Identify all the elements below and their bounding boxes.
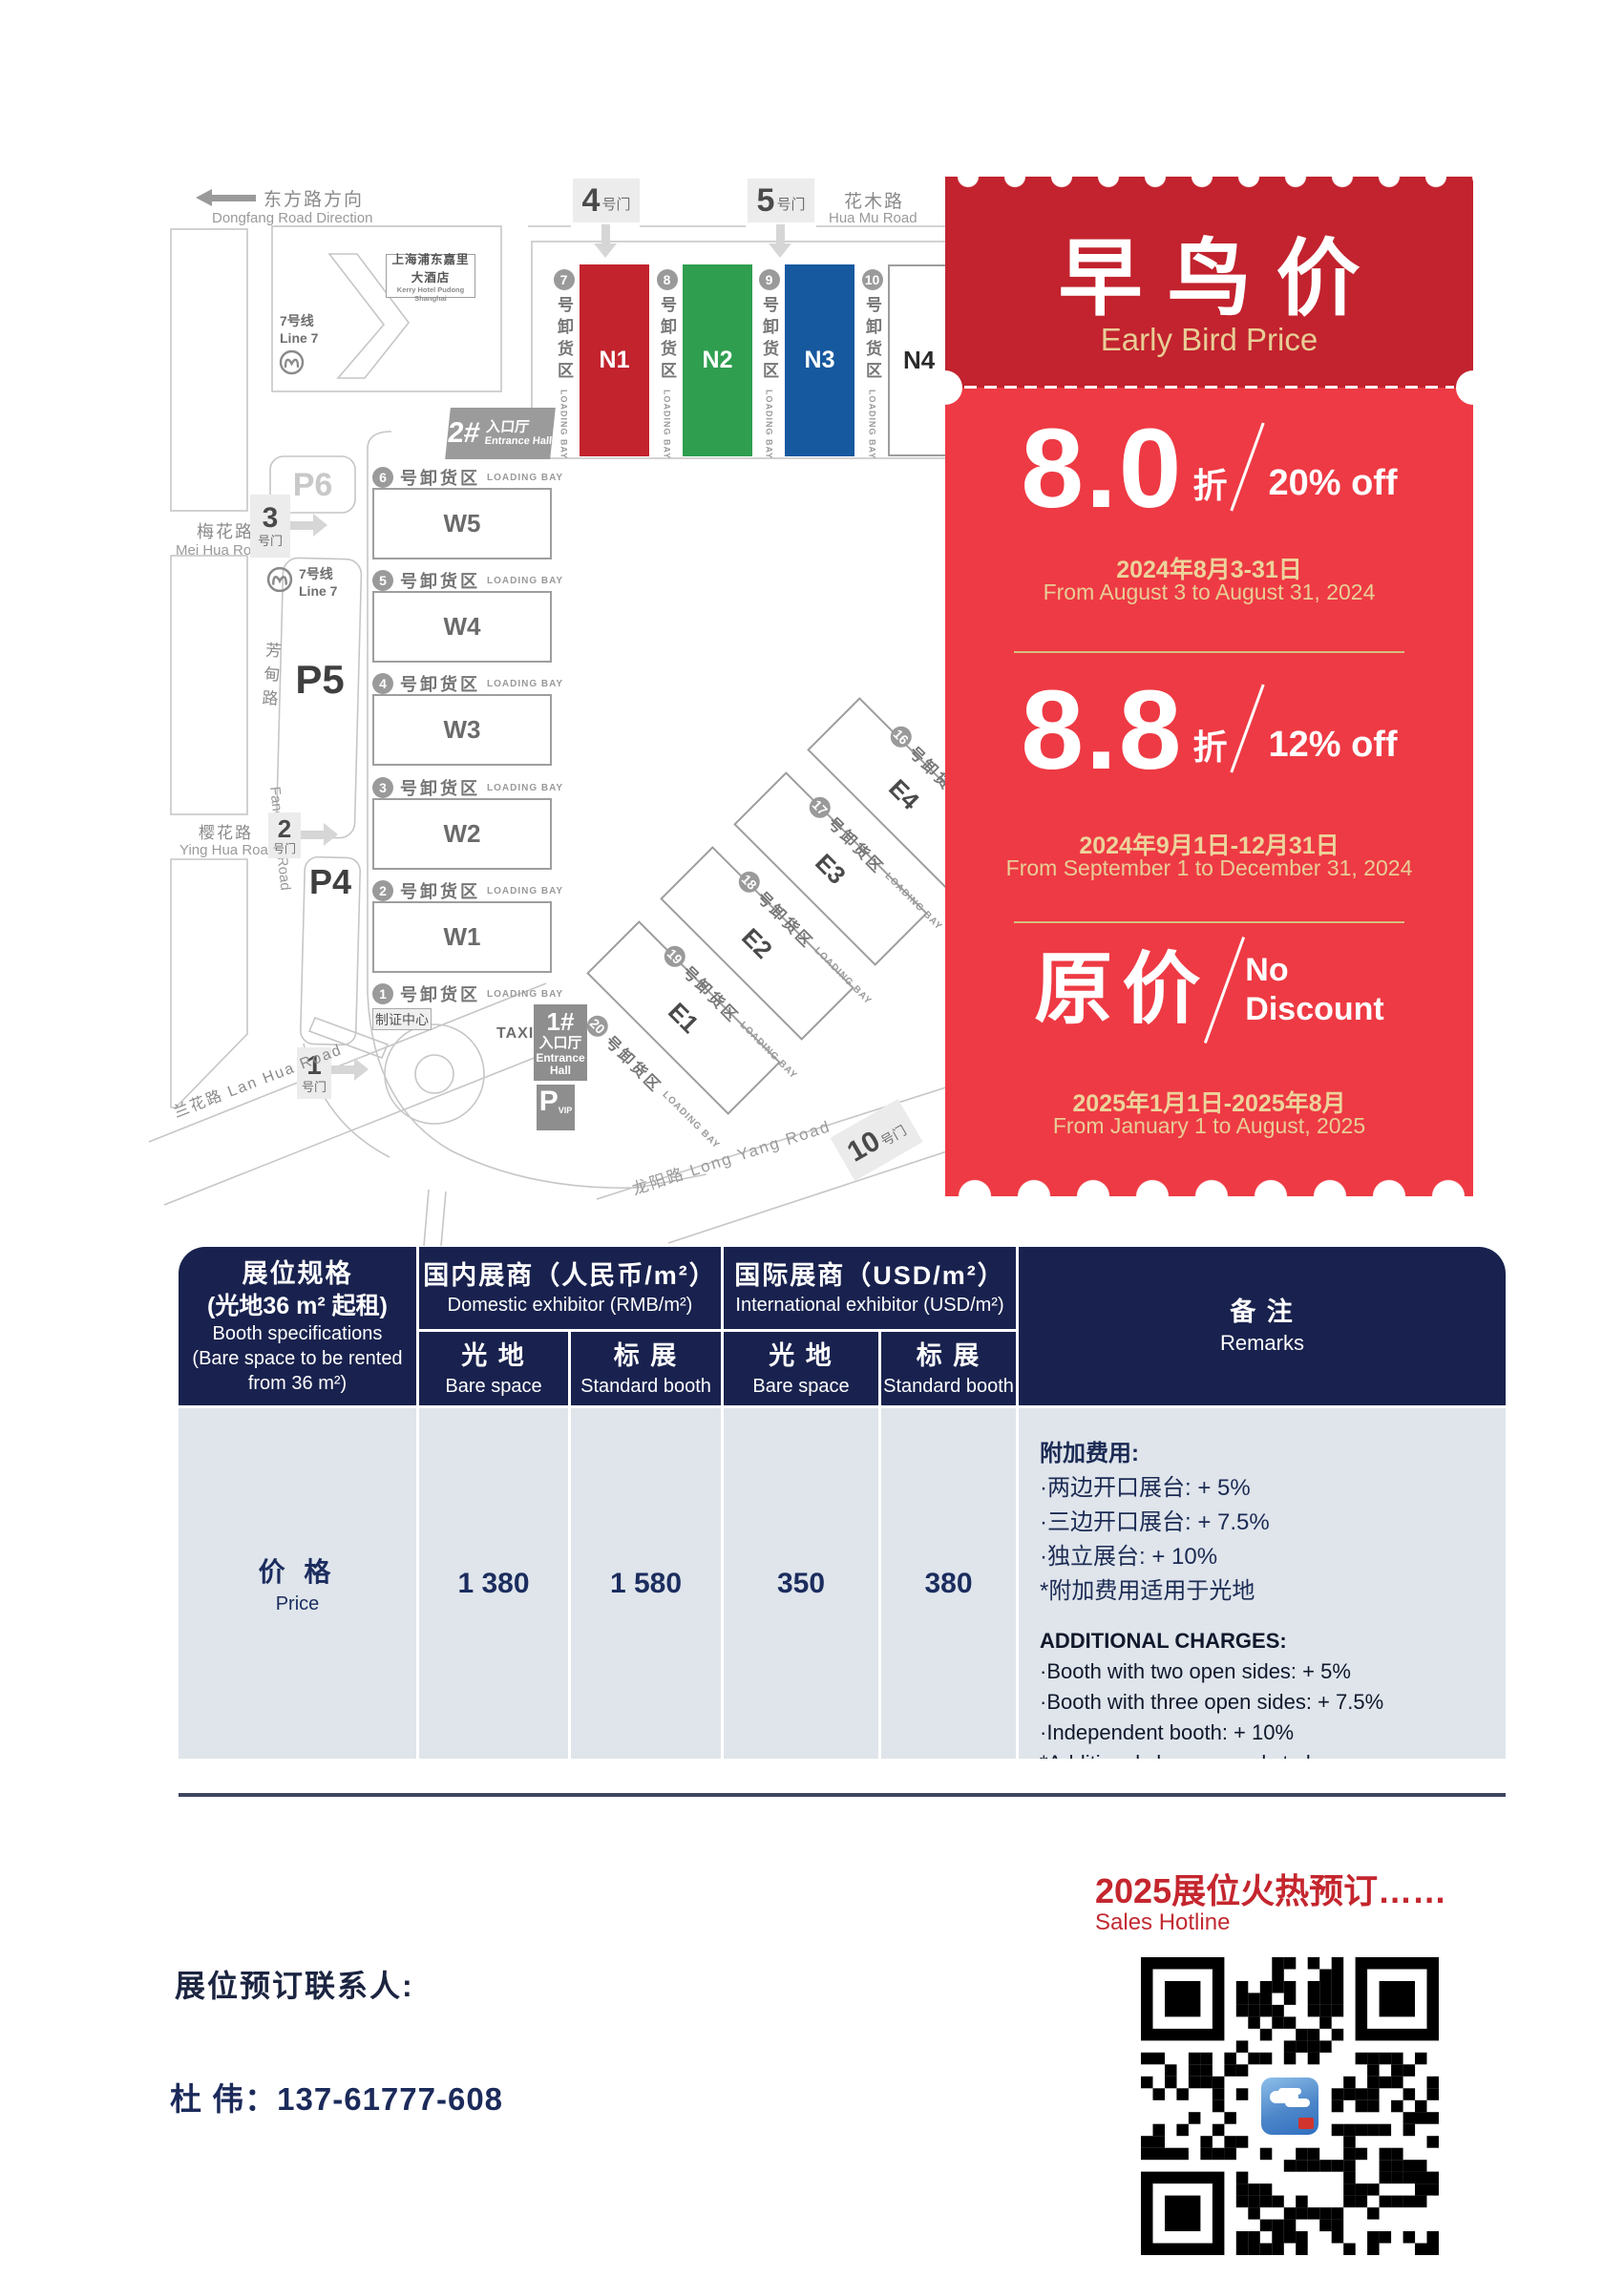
remarks-body: 附加费用: ·两边开口展台: + 5% ·三边开口展台: + 7.5% ·独立展… bbox=[1019, 1408, 1506, 1759]
slash-divider bbox=[1231, 684, 1265, 772]
line7-label-hotel: 7号线 Line 7 bbox=[280, 313, 318, 347]
loading-bay-3: 3号卸货区LOADING BAY bbox=[372, 775, 563, 800]
vip-parking-banner: P VIP bbox=[537, 1085, 575, 1130]
flyer-page: 东方路方向 Dongfang Road Direction 上海浦东嘉里大酒店 … bbox=[0, 0, 1624, 2278]
col-booth-specifications: 展位规格 (光地36 m² 起租) Booth specifications (… bbox=[179, 1247, 416, 1405]
hall-w3: W3 bbox=[372, 694, 552, 766]
loading-bay-2: 2号卸货区LOADING BAY bbox=[372, 878, 563, 903]
huamu-road-label-zh: 花木路 bbox=[844, 187, 904, 213]
price-table: 展位规格 (光地36 m² 起租) Booth specifications (… bbox=[179, 1247, 1506, 1759]
booking-contact-label: 展位预订联系人: bbox=[175, 1962, 414, 2006]
slash-divider bbox=[1204, 937, 1245, 1044]
kerry-hotel-label: 上海浦东嘉里大酒店 Kerry Hotel Pudong Shanghai bbox=[386, 254, 475, 298]
loading-bay-7: 7 号卸货区 LOADING BAY bbox=[552, 269, 576, 459]
col-intl-standard: 标 展 Standard booth bbox=[881, 1332, 1016, 1405]
tier-divider bbox=[1014, 651, 1404, 653]
tier1-period-en: From August 3 to August 31, 2024 bbox=[945, 580, 1473, 605]
coupon-notch-right bbox=[1456, 370, 1490, 405]
gate-3: 3 号门 bbox=[250, 495, 290, 558]
flag-icon bbox=[1298, 2118, 1314, 2129]
huamu-road-label-en: Hua Mu Road bbox=[829, 210, 917, 226]
parking-p5: P5 bbox=[291, 657, 348, 703]
coupon-title-en: Early Bird Price bbox=[945, 322, 1473, 358]
hall-n1: N1 bbox=[580, 264, 649, 456]
tier-divider bbox=[1014, 921, 1404, 923]
price-domestic-standard: 1 580 bbox=[571, 1408, 721, 1759]
gate-1-arrow-icon bbox=[331, 1058, 369, 1081]
loading-bay-9: 9 号卸货区 LOADING BAY bbox=[757, 269, 781, 459]
meihua-road-label-zh: 梅花路 bbox=[197, 518, 254, 543]
col-intl-bare: 光 地 Bare space bbox=[724, 1332, 878, 1405]
sales-hotline-title: 2025展位火热预订…… bbox=[1095, 1864, 1462, 1913]
price-domestic-bare: 1 380 bbox=[419, 1408, 568, 1759]
loading-bay-10: 10 号卸货区 LOADING BAY bbox=[860, 269, 884, 459]
loading-bay-1: 1号卸货区LOADING BAY bbox=[372, 981, 563, 1006]
loading-bay-6: 6号卸货区LOADING BAY bbox=[372, 465, 563, 490]
hall-w1: W1 bbox=[372, 901, 552, 973]
hall-n3: N3 bbox=[785, 264, 854, 456]
loading-bay-4: 4号卸货区LOADING BAY bbox=[372, 671, 563, 696]
coupon-title-zh: 早鸟价 bbox=[945, 211, 1473, 332]
line7-label-p5: 7号线 Line 7 bbox=[299, 566, 337, 600]
col-group-domestic: 国内展商（人民币/m²） Domestic exhibitor (RMB/m²) bbox=[419, 1247, 721, 1329]
gate-4-arrow-icon bbox=[594, 224, 617, 258]
coupon-notch-left bbox=[928, 370, 962, 405]
gate-5-arrow-icon bbox=[769, 224, 791, 258]
gate-5: 5号门 bbox=[748, 179, 814, 222]
entrance-hall-2-banner: 2# 入口厅 Entrance Hall bbox=[445, 408, 556, 459]
gate-3-arrow-icon bbox=[290, 514, 327, 537]
tier2-discount: 8.8 折 12% off bbox=[945, 682, 1473, 775]
footer-divider bbox=[179, 1793, 1506, 1797]
metro-logo-icon bbox=[266, 566, 293, 593]
col-domestic-bare: 光 地 Bare space bbox=[419, 1332, 568, 1405]
coupon-dashed-line bbox=[964, 386, 1454, 389]
slash-divider bbox=[1231, 422, 1265, 511]
qr-center-logo bbox=[1257, 2074, 1322, 2139]
fangdian-road-label-zh: 芳甸路 bbox=[255, 641, 284, 714]
hall-w2: W2 bbox=[372, 798, 552, 870]
badge-center-label: 制证中心 bbox=[372, 1008, 432, 1030]
metro-logo-icon bbox=[279, 349, 305, 375]
contact-phone: 杜 伟：137-61777-608 bbox=[170, 2074, 503, 2120]
hall-n2: N2 bbox=[683, 264, 752, 456]
gate-2-arrow-icon bbox=[301, 823, 338, 846]
gate-2: 2 号门 bbox=[268, 812, 301, 858]
sales-hotline-subtitle: Sales Hotline bbox=[1095, 1909, 1230, 1936]
dongfang-direction-arrow-icon bbox=[196, 189, 256, 206]
gate-4: 4号门 bbox=[573, 179, 640, 222]
coupon-header: 早鸟价 Early Bird Price bbox=[945, 177, 1473, 388]
dongfang-road-label-en: Dongfang Road Direction bbox=[212, 210, 372, 226]
hall-w4: W4 bbox=[372, 591, 552, 663]
tier2-period-en: From September 1 to December 31, 2024 bbox=[945, 855, 1473, 881]
tier3-no-discount: 原价 No Discount bbox=[945, 934, 1473, 1046]
tier1-discount: 8.0 折 20% off bbox=[945, 420, 1473, 514]
loading-bay-8: 8 号卸货区 LOADING BAY bbox=[655, 269, 679, 459]
yinghua-road-label-zh: 樱花路 bbox=[199, 819, 253, 843]
early-bird-coupon: 早鸟价 Early Bird Price 8.0 折 20% off 2024年… bbox=[945, 177, 1473, 1196]
yinghua-road-label-en: Ying Hua Road bbox=[179, 842, 276, 858]
loading-bay-5: 5号卸货区LOADING BAY bbox=[372, 568, 563, 593]
cloud-icon bbox=[1270, 2091, 1298, 2103]
entrance-hall-1-banner: 1# 入口厅 Entrance Hall bbox=[534, 1004, 587, 1081]
col-group-international: 国际展商（USD/m²） International exhibitor (US… bbox=[724, 1247, 1016, 1329]
dongfang-road-label-zh: 东方路方向 bbox=[264, 185, 364, 211]
hall-w5: W5 bbox=[372, 488, 552, 559]
tier3-period-en: From January 1 to August, 2025 bbox=[945, 1113, 1473, 1139]
col-domestic-standard: 标 展 Standard booth bbox=[571, 1332, 721, 1405]
coupon-body: 8.0 折 20% off 2024年8月3-31日 From August 3… bbox=[945, 388, 1473, 1196]
col-remarks: 备 注 Remarks bbox=[1019, 1247, 1506, 1405]
price-intl-standard: 380 bbox=[881, 1408, 1016, 1759]
taxi-label: TAXI bbox=[496, 1025, 534, 1043]
price-intl-bare: 350 bbox=[724, 1408, 878, 1759]
qr-code bbox=[1141, 1957, 1439, 2255]
parking-p4: P4 bbox=[303, 862, 358, 902]
row-price-label: 价 格 Price bbox=[179, 1408, 416, 1759]
